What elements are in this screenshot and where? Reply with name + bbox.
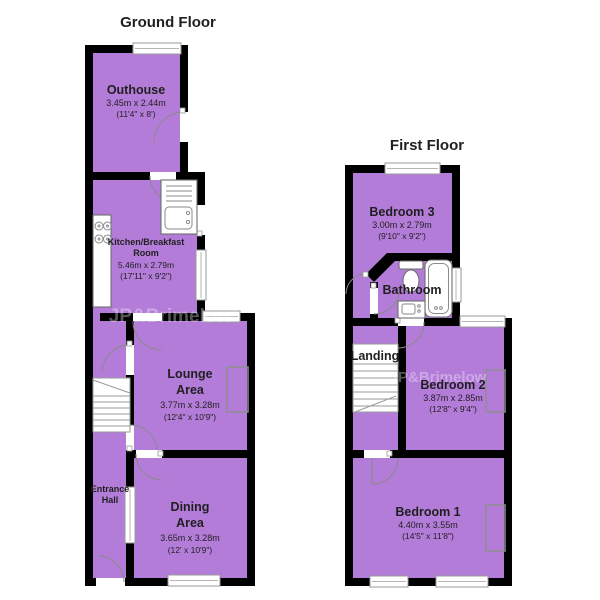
- kitchen-metric: 5.46m x 2.79m: [118, 260, 174, 270]
- window: [460, 316, 505, 327]
- first-floor-title: First Floor: [390, 137, 464, 154]
- window: [125, 487, 135, 543]
- window: [436, 576, 488, 587]
- lounge-label-1: Lounge: [167, 367, 212, 381]
- kitchen-label-1: Kitchen/Breakfast: [108, 237, 185, 247]
- bedroom2-metric: 3.87m x 2.85m: [423, 393, 483, 403]
- floorplan-image: JP&Brimelow Ground Floor Outhouse 3.45m …: [0, 0, 600, 600]
- bedroom3-imperial: (9'10" x 9'2"): [378, 231, 426, 241]
- floorplan-canvas: JP&Brimelow Ground Floor Outhouse 3.45m …: [0, 0, 600, 600]
- ground-stairs: [93, 378, 130, 432]
- bathroom-label: Bathroom: [382, 283, 441, 297]
- outhouse-imperial: (11'4" x 8'): [116, 109, 155, 119]
- window: [385, 163, 440, 174]
- kitchen-label-2: Room: [133, 248, 159, 258]
- bedroom3-metric: 3.00m x 2.79m: [372, 220, 432, 230]
- kitchen-sink-icon: [161, 180, 197, 234]
- entrance-hall-label-1: Entrance: [91, 484, 130, 494]
- entrance-hall-label-2: Hall: [102, 495, 119, 505]
- basin-icon: [398, 301, 425, 318]
- window: [168, 575, 220, 586]
- window: [133, 43, 181, 54]
- lounge-label-2: Area: [176, 383, 205, 397]
- stove-icon: [93, 215, 112, 307]
- bedroom1-label: Bedroom 1: [395, 505, 460, 519]
- dining-label-2: Area: [176, 516, 205, 530]
- watermark-ground: JP&Brimelow: [109, 306, 232, 327]
- bedroom1-imperial: (14'5" x 11'8"): [402, 531, 454, 541]
- first-floor-plan: JP&Brimelow First Floor Bedroom 3 3.00m …: [345, 137, 512, 587]
- lounge-imperial: (12'4" x 10'9"): [164, 412, 216, 422]
- kitchen-imperial: (17'11" x 9'2"): [120, 271, 172, 281]
- dining-label-1: Dining: [171, 500, 210, 514]
- outhouse-metric: 3.45m x 2.44m: [106, 98, 166, 108]
- bedroom2-imperial: (12'8" x 9'4"): [429, 404, 477, 414]
- dining-metric: 3.65m x 3.28m: [160, 533, 220, 543]
- window: [370, 576, 408, 587]
- bedroom1-metric: 4.40m x 3.55m: [398, 520, 458, 530]
- lounge-metric: 3.77m x 3.28m: [160, 400, 220, 410]
- dining-imperial: (12' x 10'9"): [168, 545, 213, 555]
- ground-floor-title: Ground Floor: [120, 14, 216, 31]
- landing-label: Landing: [351, 349, 400, 363]
- outhouse-label: Outhouse: [107, 83, 165, 97]
- bedroom2-label: Bedroom 2: [420, 378, 485, 392]
- bedroom3-label: Bedroom 3: [369, 205, 434, 219]
- ground-floor-plan: JP&Brimelow Ground Floor Outhouse 3.45m …: [85, 14, 255, 586]
- window: [196, 250, 206, 300]
